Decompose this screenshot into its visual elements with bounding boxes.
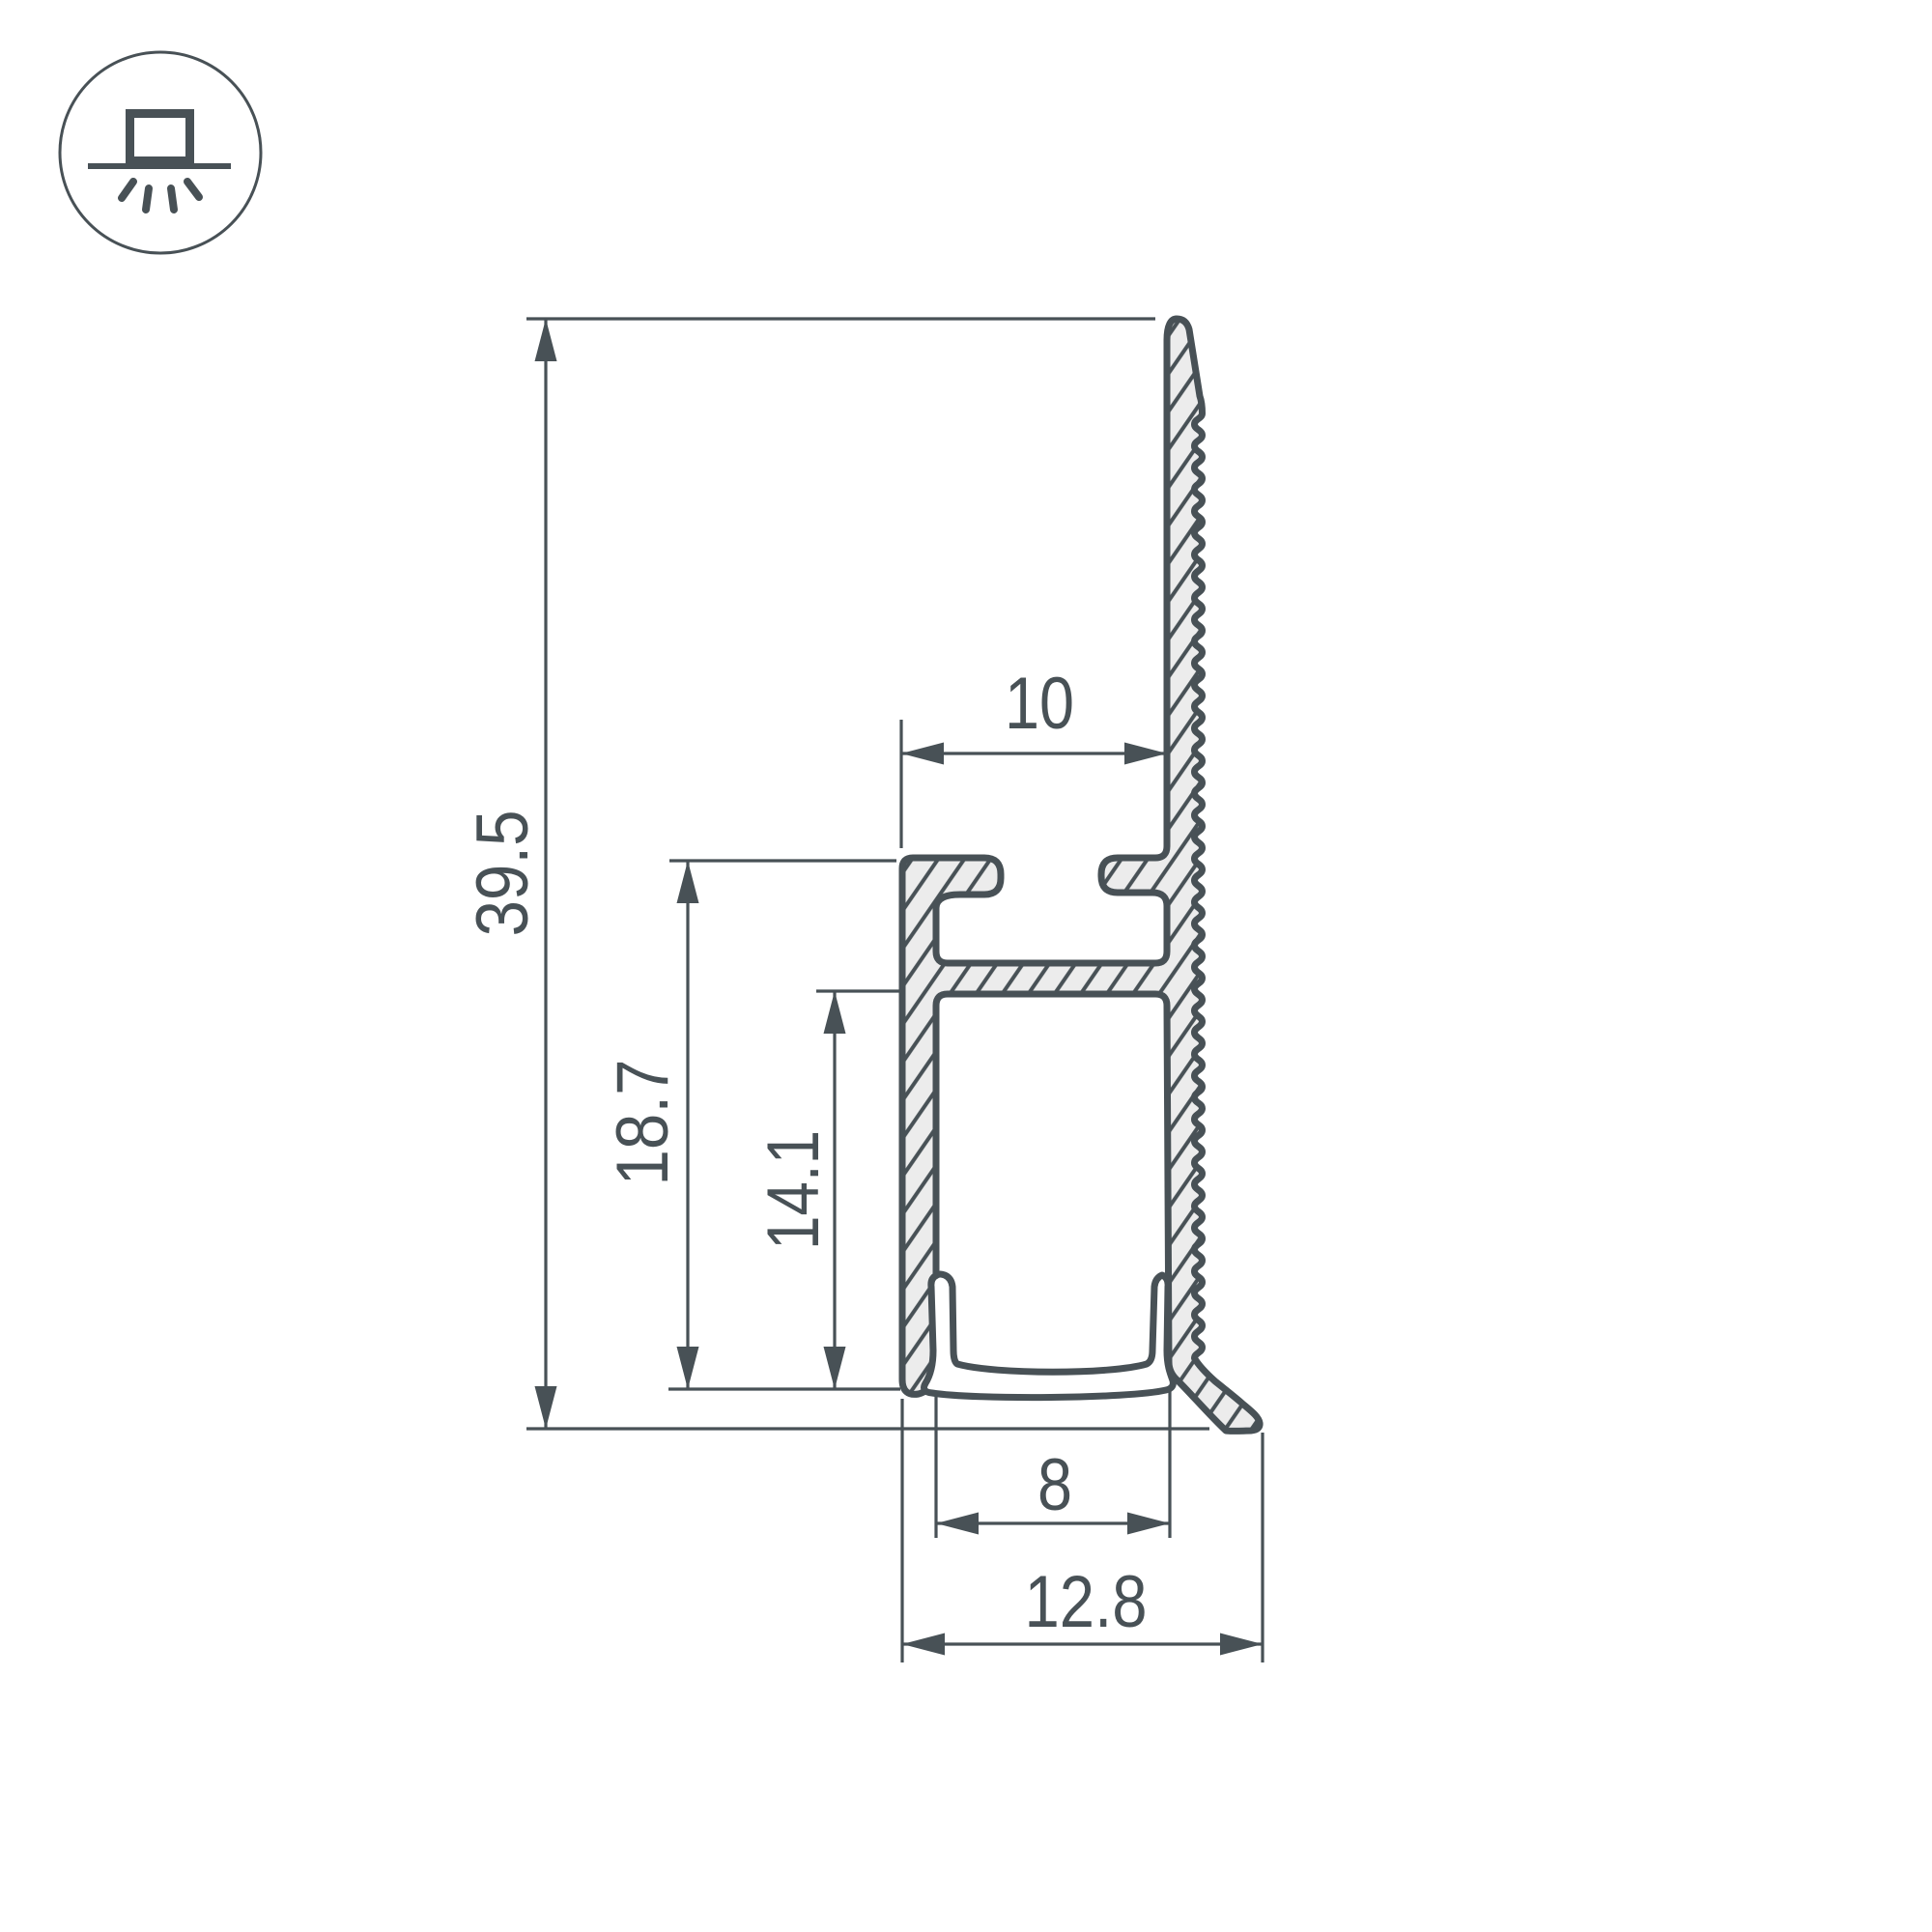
svg-text:8: 8 bbox=[1037, 1444, 1072, 1526]
svg-text:12.8: 12.8 bbox=[1025, 1561, 1148, 1643]
svg-text:18.7: 18.7 bbox=[602, 1060, 684, 1186]
svg-text:10: 10 bbox=[1005, 663, 1074, 745]
svg-text:14.1: 14.1 bbox=[753, 1130, 835, 1250]
svg-text:39.5: 39.5 bbox=[462, 810, 544, 937]
